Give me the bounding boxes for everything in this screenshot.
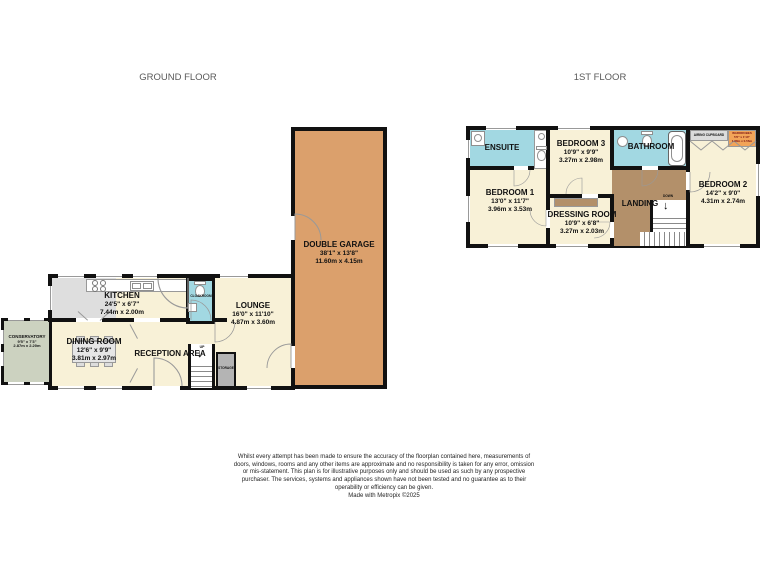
window (48, 286, 52, 310)
window (247, 386, 271, 390)
stairs-treads (653, 214, 686, 232)
bedroom-3-label: BEDROOM 3 10'9" x 9'9" 3.27m x 2.98m (557, 139, 605, 165)
window (133, 274, 157, 278)
disclaimer-text: Whilst every attempt has been made to en… (234, 454, 534, 491)
window (466, 140, 470, 158)
doorway-opening (134, 318, 160, 322)
room-dim-metric: 4.31m x 2.74m (699, 198, 747, 206)
window (558, 126, 590, 130)
bedroom-2-label: BEDROOM 2 14'2" x 9'0" 4.31m x 2.74m (699, 180, 747, 206)
room-dim-imperial: 16'0" x 11'10" (231, 311, 275, 319)
window (704, 244, 740, 248)
kitchen-sink-icon (132, 283, 141, 289)
window (488, 244, 518, 248)
room-name: DOUBLE GARAGE (303, 240, 374, 250)
door-arc (191, 300, 211, 320)
room-dim-imperial: 24'5" x 6'7" (100, 301, 144, 309)
reception-area-label: RECEPTION AREA (134, 349, 205, 359)
window (58, 386, 84, 390)
room-name: RECEPTION AREA (134, 349, 205, 359)
double-garage-label: DOUBLE GARAGE 38'1" x 13'8" 11.60m x 4.1… (303, 240, 374, 266)
room-dim-metric: 7.44m x 2.00m (100, 309, 144, 317)
window (486, 126, 516, 130)
door-arc (154, 358, 182, 386)
airing-cupboard-label: AIRING CUPBOARD (694, 133, 724, 137)
room-name: LOUNGE (231, 301, 275, 311)
window (756, 164, 760, 196)
window (96, 274, 122, 278)
room-dim-metric: 2.87m x 2.20m (8, 344, 45, 349)
room-dim-metric: 4.87m x 3.60m (231, 319, 275, 327)
door-arc (267, 344, 291, 368)
bedroom-1-label: BEDROOM 1 13'0" x 11'7" 3.96m x 3.53m (486, 188, 534, 214)
window (96, 386, 122, 390)
disclaimer: Whilst every attempt has been made to en… (233, 454, 535, 501)
wardrobes-dim-metric: 1.68m x 0.56m (732, 139, 752, 143)
cloakroom-label: CLOAKROOM (190, 294, 211, 298)
room-name: BEDROOM 3 (557, 139, 605, 149)
room-name: LANDING (622, 199, 658, 209)
storage-label: STORAGE (218, 366, 234, 370)
window (556, 244, 588, 248)
room-name: BATHROOM (628, 142, 675, 152)
interior-wall (610, 126, 614, 170)
bathroom-label: BATHROOM (628, 142, 675, 152)
window (466, 196, 470, 222)
room-dim-imperial: 13'0" x 11'7" (486, 198, 534, 206)
shower-icon (538, 133, 545, 140)
room-dim-metric: 3.96m x 3.53m (486, 206, 534, 214)
room-dim-imperial: 10'9" x 6'8" (548, 220, 617, 228)
chair-icon (104, 362, 113, 367)
wardrobe-unit (554, 198, 598, 207)
room-dim-metric: 11.60m x 4.15m (303, 258, 374, 266)
room-dim-imperial: 38'1" x 13'8" (303, 250, 374, 258)
door-arc (295, 214, 321, 240)
toilet-icon (537, 150, 546, 161)
doorway-opening (76, 318, 102, 322)
room-dim-metric: 3.81m x 2.97m (66, 355, 121, 363)
window (1, 330, 4, 344)
door-arc (566, 178, 582, 194)
room-dim-metric: 3.27m x 2.03m (548, 228, 617, 236)
chair-icon (90, 362, 99, 367)
doorway-opening (582, 194, 598, 198)
room-conservatory (1, 318, 52, 385)
door-arc (642, 170, 658, 186)
room-name: DINING ROOM (66, 337, 121, 347)
room-name: BEDROOM 2 (699, 180, 747, 190)
window (8, 318, 24, 321)
room-name: DRESSING ROOM (548, 210, 617, 220)
stairs-treads (640, 232, 686, 246)
floorplan-canvas: GROUND FLOOR 1ST FLOOR UP ↓ (0, 0, 768, 576)
conservatory-label: CONSERVATORY 9'5" x 7'3" 2.87m x 2.20m (8, 334, 45, 349)
front-door-opening (152, 386, 180, 390)
room-storage (216, 352, 236, 388)
room-name: ENSUITE (485, 143, 520, 153)
kitchen-label: KITCHEN 24'5" x 6'7" 7.44m x 2.00m (100, 291, 144, 317)
window (30, 382, 44, 385)
room-dim-imperial: 14'2" x 9'0" (699, 190, 747, 198)
interior-wall (550, 194, 612, 198)
stairs-treads (191, 362, 212, 388)
window (8, 382, 24, 385)
hob-icon (92, 286, 98, 292)
dining-room-label: DINING ROOM 12'6" x 9'9" 3.81m x 2.97m (66, 337, 121, 363)
interior-wall (48, 318, 190, 322)
dressing-room-label: DRESSING ROOM 10'9" x 6'8" 3.27m x 2.03m (548, 210, 617, 236)
window (1, 352, 4, 366)
window (220, 274, 248, 278)
window (30, 318, 44, 321)
chair-icon (76, 362, 85, 367)
first-floor-title: 1ST FLOOR (574, 72, 627, 83)
room-dim-metric: 3.27m x 2.98m (557, 157, 605, 165)
ensuite-sink-icon (474, 134, 482, 142)
door-arc (158, 278, 188, 308)
landing-label: LANDING (622, 199, 658, 209)
door-arc (514, 170, 530, 186)
room-name: BEDROOM 1 (486, 188, 534, 198)
wardrobes-label: WARDROBES 5'6" x 1'10" 1.68m x 0.56m (732, 131, 752, 143)
ground-floor-title: GROUND FLOOR (139, 72, 217, 83)
room-name: KITCHEN (100, 291, 144, 301)
window (58, 274, 84, 278)
credit-line: Made with Metropix ©2025 (233, 493, 535, 501)
bathroom-sink-icon (617, 136, 628, 147)
down-arrow-icon: ↓ (663, 201, 669, 212)
stairs-down-label: DOWN (663, 194, 673, 198)
garage-door-opening (291, 346, 295, 368)
room-dim-imperial: 12'6" x 9'9" (66, 347, 121, 355)
ensuite-label: ENSUITE (485, 143, 520, 153)
kitchen-sink-icon (143, 283, 152, 289)
room-dim-imperial: 10'9" x 9'9" (557, 149, 605, 157)
lounge-label: LOUNGE 16'0" x 11'10" 4.87m x 3.60m (231, 301, 275, 327)
